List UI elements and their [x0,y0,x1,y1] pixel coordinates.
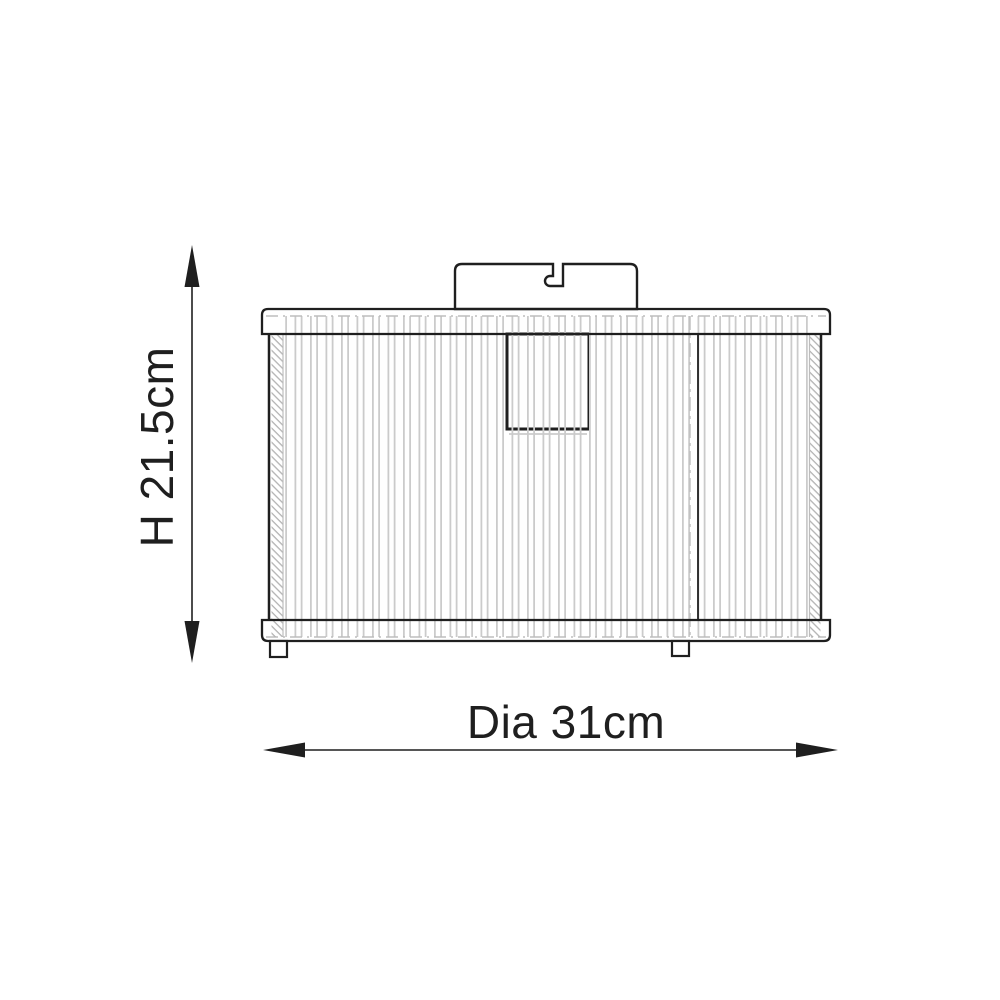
left-section-hatch [272,334,284,637]
height-dimension-arrow [185,245,200,663]
diameter-dimension-label: Dia 31cm [467,695,665,749]
height-dimension-label: H 21.5cm [130,347,184,548]
diagram-canvas: H 21.5cm Dia 31cm [0,0,1000,1000]
right-section-hatch [810,334,821,637]
ribbed-shade-texture [285,316,808,637]
mounting-bracket [455,264,637,309]
foot-right [672,641,689,656]
foot-left [270,641,287,657]
